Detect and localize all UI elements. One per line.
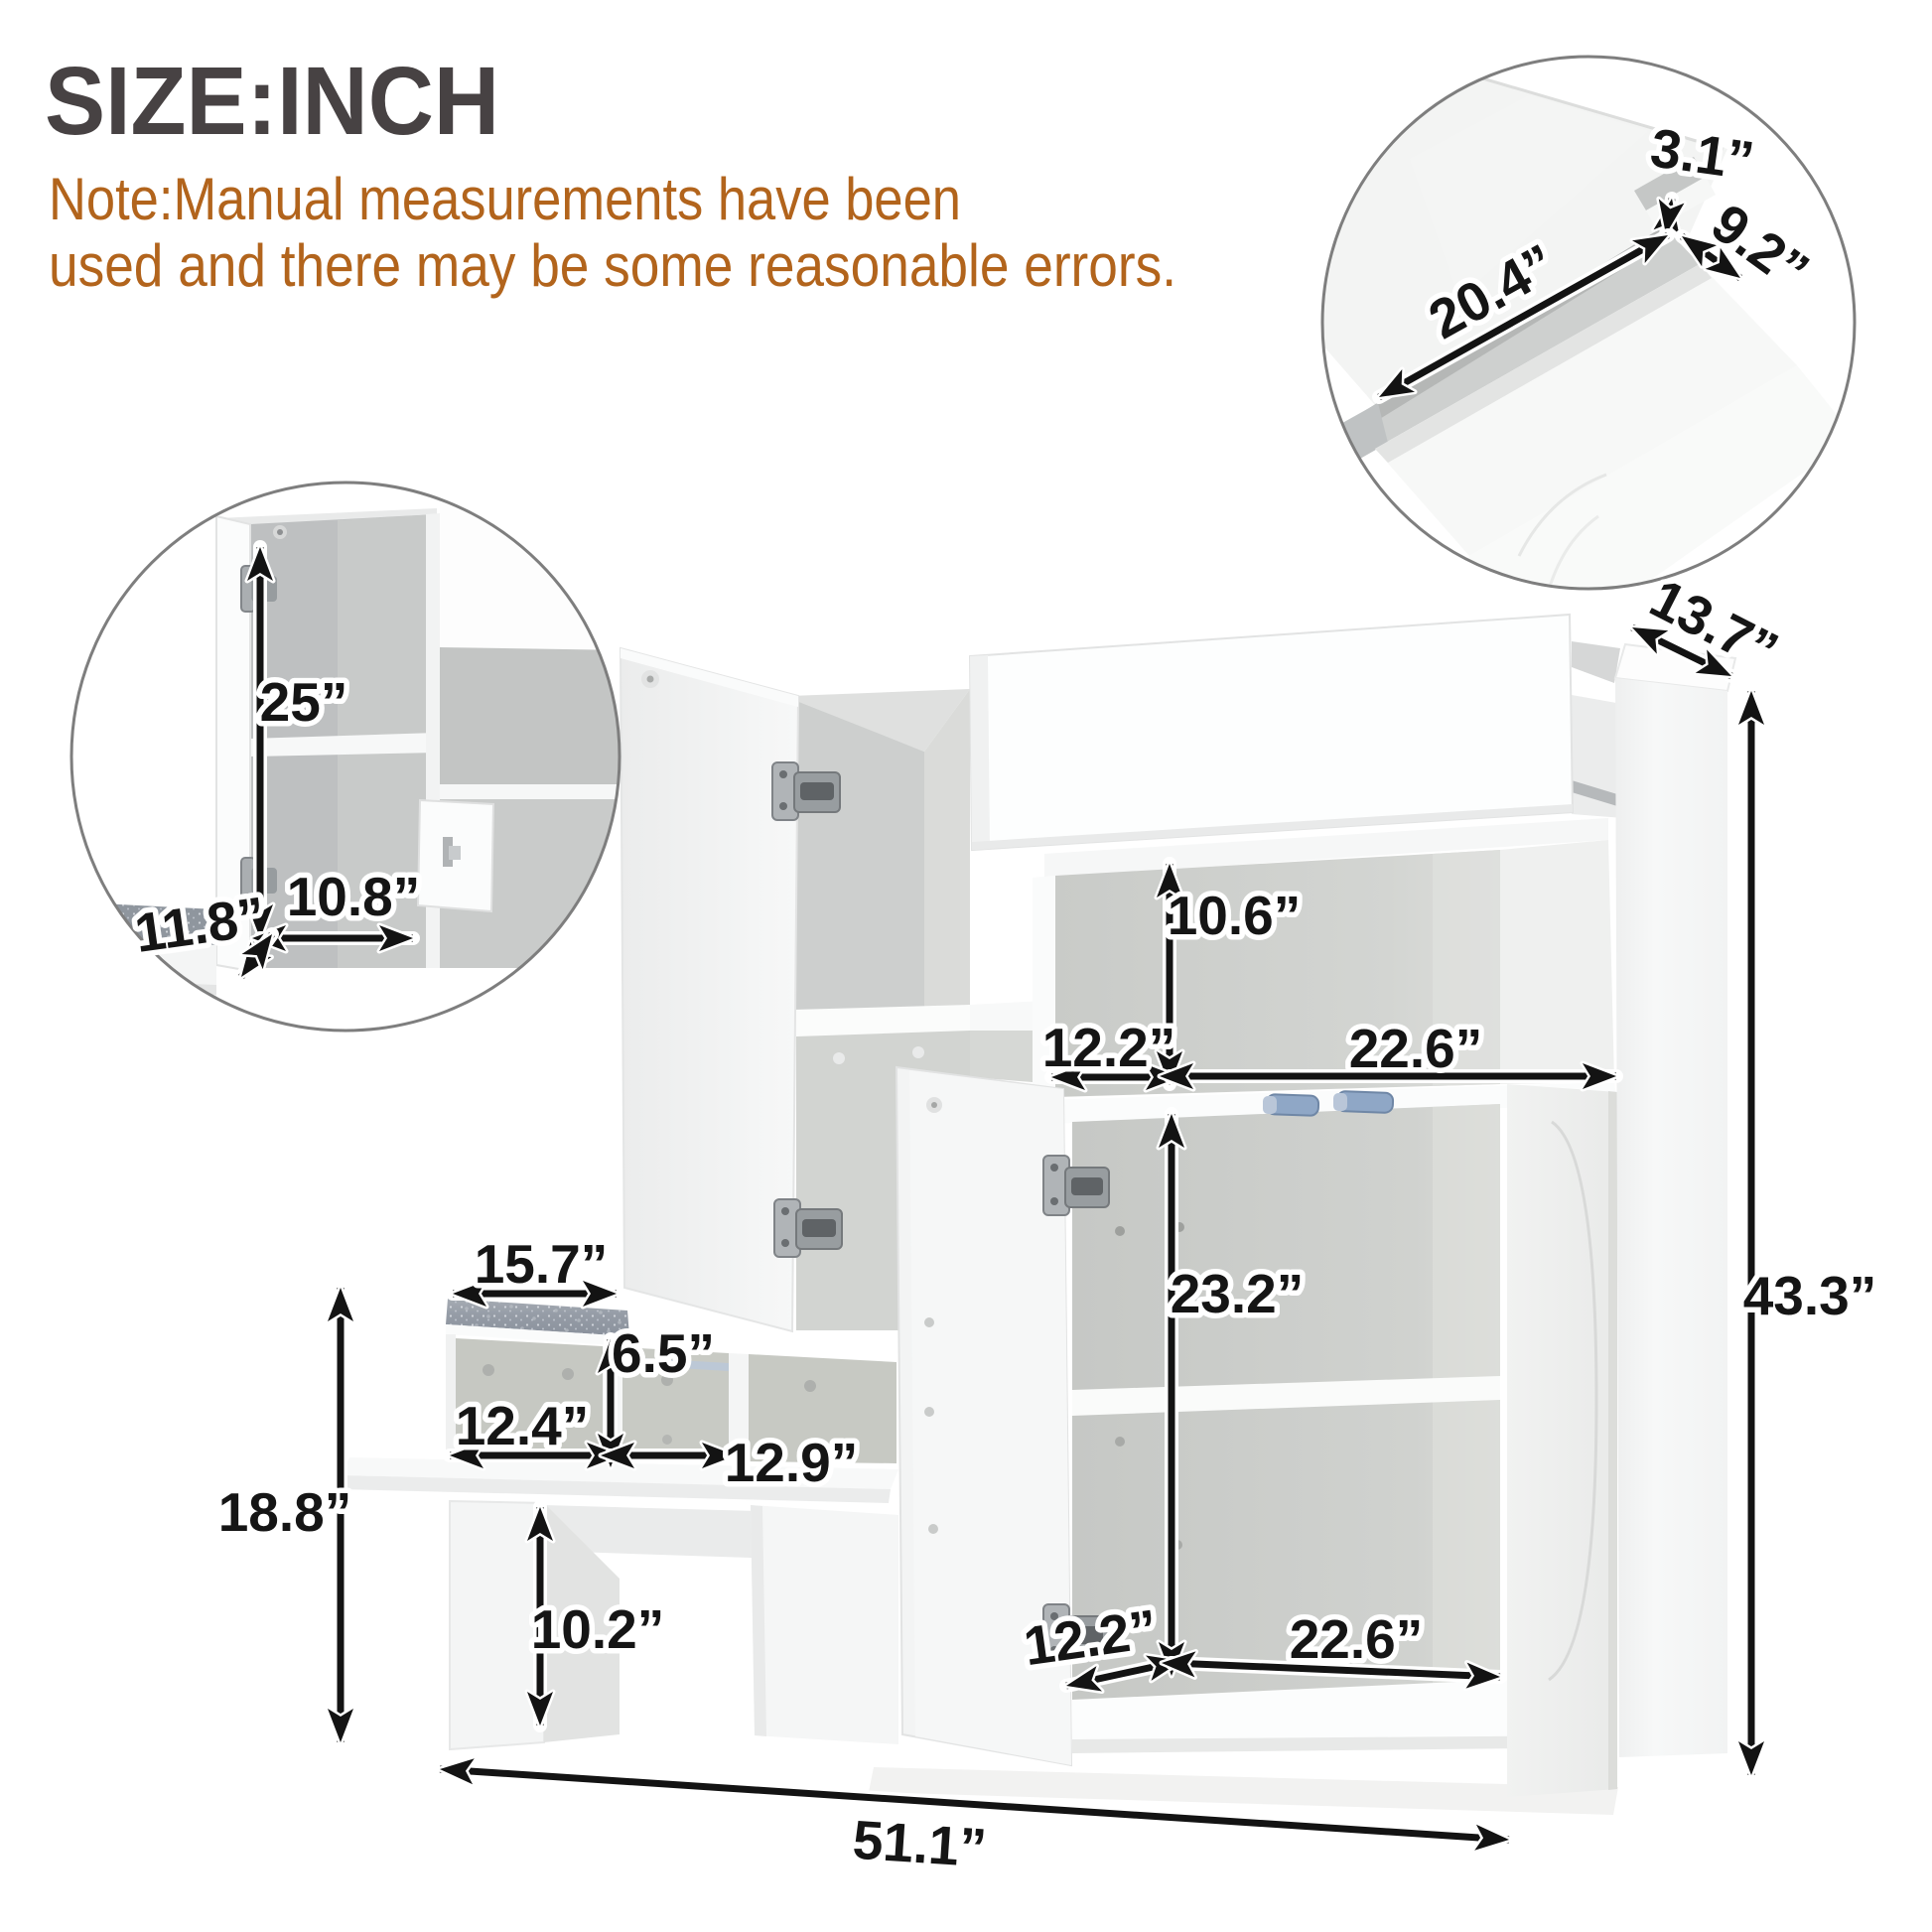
svg-text:23.2”: 23.2” — [1171, 1263, 1305, 1324]
svg-text:10.8”: 10.8” — [287, 866, 421, 927]
svg-text:43.3”: 43.3” — [1743, 1265, 1877, 1326]
svg-text:12.2”: 12.2” — [1042, 1017, 1176, 1078]
svg-text:12.4”: 12.4” — [456, 1395, 590, 1456]
svg-text:SIZE:INCH: SIZE:INCH — [45, 47, 499, 155]
svg-text:10.2”: 10.2” — [531, 1598, 665, 1660]
svg-text:18.8”: 18.8” — [218, 1481, 352, 1543]
svg-text:12.9”: 12.9” — [725, 1432, 859, 1493]
svg-text:Note:Manual measurements have: Note:Manual measurements have been — [49, 166, 961, 232]
svg-text:22.6”: 22.6” — [1349, 1018, 1483, 1079]
svg-text:10.6”: 10.6” — [1168, 885, 1302, 946]
svg-text:25”: 25” — [260, 671, 348, 733]
svg-text:51.1”: 51.1” — [851, 1809, 988, 1879]
svg-text:6.5”: 6.5” — [612, 1322, 715, 1384]
svg-text:15.7”: 15.7” — [475, 1233, 609, 1295]
svg-text:22.6”: 22.6” — [1290, 1608, 1424, 1670]
svg-text:used and there may be some rea: used and there may be some reasonable er… — [49, 232, 1176, 299]
